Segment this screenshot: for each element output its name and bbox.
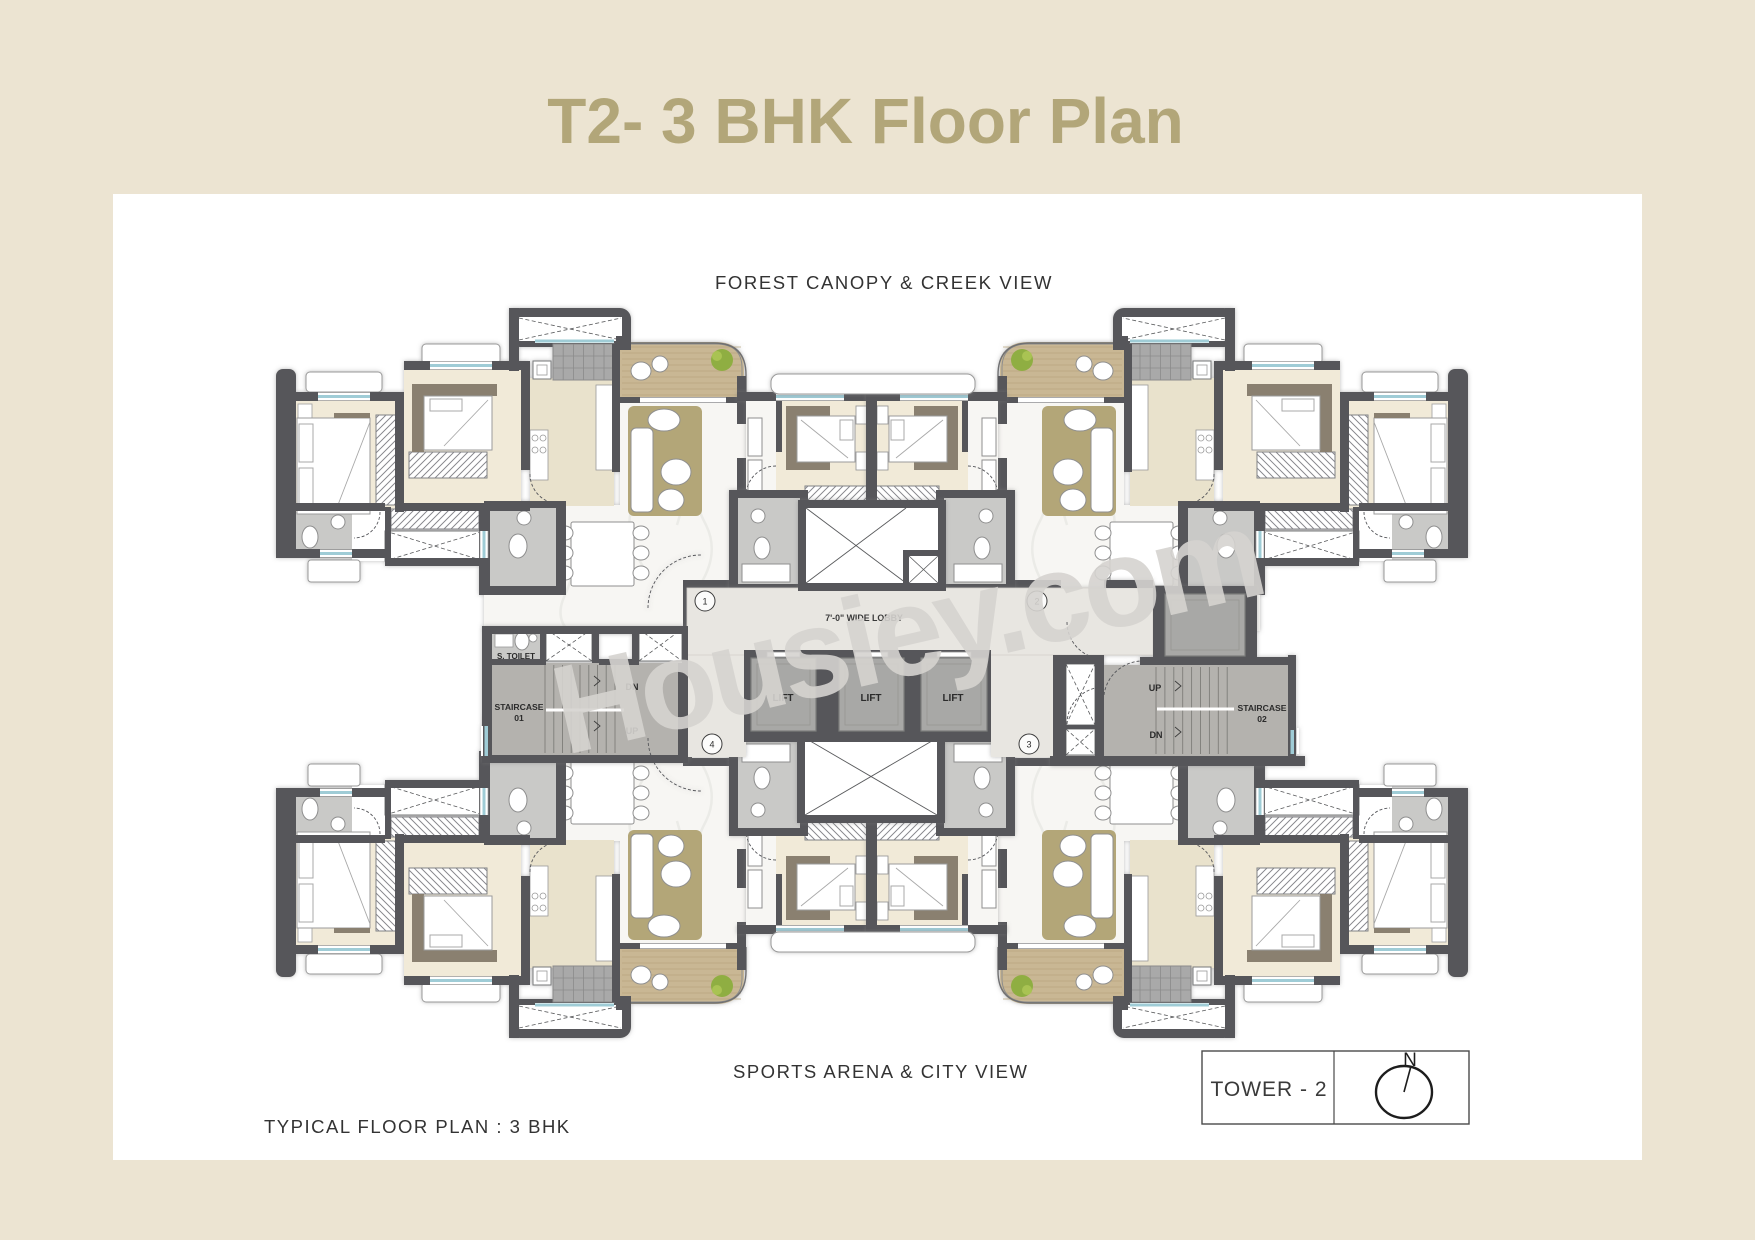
svg-text:TOWER - 2: TOWER - 2 xyxy=(1210,1078,1327,1101)
svg-text:02: 02 xyxy=(1257,714,1267,724)
svg-text:STAIRCASE: STAIRCASE xyxy=(494,702,543,712)
svg-text:STAIRCASE: STAIRCASE xyxy=(1237,703,1286,713)
svg-text:UP: UP xyxy=(1149,683,1162,693)
svg-text:DN: DN xyxy=(1150,730,1163,740)
svg-text:01: 01 xyxy=(514,713,524,723)
svg-text:3: 3 xyxy=(1026,740,1031,750)
svg-text:S. TOILET: S. TOILET xyxy=(497,652,535,661)
